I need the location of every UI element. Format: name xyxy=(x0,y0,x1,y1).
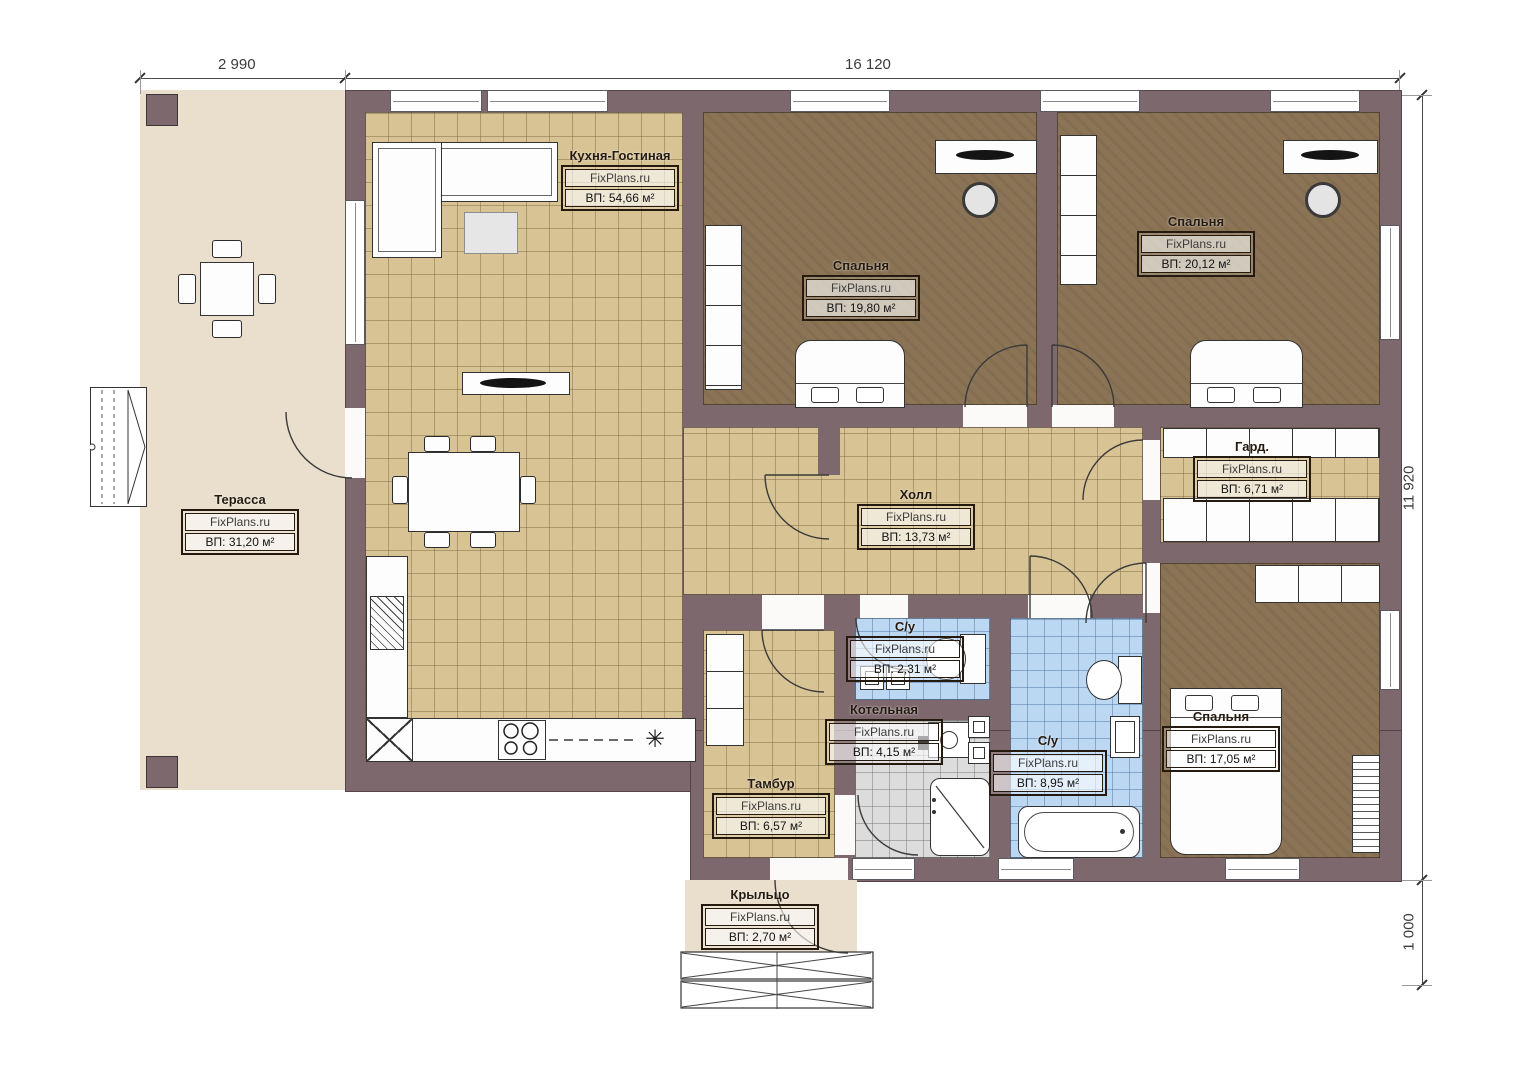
room-label-vestibule: Тамбур FixPlans.ru ВП: 6,57 м² xyxy=(712,776,830,839)
terrace-post-bottom xyxy=(146,756,178,788)
dim-ext xyxy=(1402,880,1432,881)
bed-bedroom1 xyxy=(795,340,905,408)
room-area: ВП: 2,31 м² xyxy=(850,660,960,678)
window-bedroom2-right xyxy=(1380,225,1400,340)
room-title: Тамбур xyxy=(712,776,830,791)
window-bedroom3-right xyxy=(1380,610,1400,690)
window-boiler-bottom xyxy=(852,858,915,880)
dim-line-right xyxy=(1422,95,1423,985)
stove xyxy=(498,720,546,760)
room-title: Крыльцо xyxy=(701,887,819,902)
room-area: ВП: 19,80 м² xyxy=(806,299,916,317)
dim-right-main-value: 11 920 xyxy=(1401,466,1418,511)
room-title: Котельная xyxy=(825,702,943,717)
room-title: Холл xyxy=(857,487,975,502)
room-area: ВП: 20,12 м² xyxy=(1141,255,1251,273)
window-living-top-1 xyxy=(390,90,482,112)
monitor-icon xyxy=(956,150,1014,160)
room-title: Спальня xyxy=(802,258,920,273)
office-chair-bedroom2 xyxy=(1305,182,1341,218)
room-title: Спальня xyxy=(1137,214,1255,229)
terrace-floor xyxy=(140,90,345,790)
shower-tray xyxy=(930,778,990,856)
terrace-post-top xyxy=(146,94,178,126)
room-title: Спальня xyxy=(1162,709,1280,724)
dim-line-top xyxy=(140,78,1400,79)
wardrobe-shelves-bottom xyxy=(1163,498,1380,542)
dining-table xyxy=(408,452,520,532)
room-area: ВП: 13,73 м² xyxy=(861,528,971,546)
room-label-terrace: Терасса FixPlans.ru ВП: 31,20 м² xyxy=(181,492,299,555)
room-label-wardrobe: Гард. FixPlans.ru ВП: 6,71 м² xyxy=(1193,439,1311,502)
dim-ext xyxy=(1402,985,1432,986)
closet-bedroom1 xyxy=(705,225,742,390)
kitchen-corner-unit xyxy=(367,719,413,761)
wardrobe-bedroom3 xyxy=(1352,755,1380,853)
closet-bedroom3 xyxy=(1255,565,1380,603)
dim-right-porch-value: 1 000 xyxy=(1401,913,1418,951)
room-area: ВП: 31,20 м² xyxy=(185,533,295,551)
dim-top-left-value: 2 990 xyxy=(218,56,256,73)
door-gap-bedroom2 xyxy=(1052,405,1114,427)
room-title: Кухня-Гостиная xyxy=(561,148,679,163)
window-living-left xyxy=(345,200,365,345)
dining-chair xyxy=(424,436,450,452)
watermark: FixPlans.ru xyxy=(705,908,815,926)
window-bedroom2-top-1 xyxy=(1040,90,1140,112)
room-label-bathroom-small: С/у FixPlans.ru ВП: 2,31 м² xyxy=(846,619,964,682)
porch-steps xyxy=(680,950,875,1012)
room-label-bathroom-big: С/у FixPlans.ru ВП: 8,95 м² xyxy=(989,733,1107,796)
room-area: ВП: 54,66 м² xyxy=(565,189,675,207)
room-area: ВП: 4,15 м² xyxy=(829,743,939,761)
door-gap-wardrobe xyxy=(1143,440,1160,500)
watermark: FixPlans.ru xyxy=(993,754,1103,772)
room-title: Терасса xyxy=(181,492,299,507)
door-gap-terrace xyxy=(345,408,365,478)
bed-bedroom2 xyxy=(1190,340,1303,408)
dim-top-main-value: 16 120 xyxy=(845,56,891,73)
watermark: FixPlans.ru xyxy=(806,279,916,297)
watermark: FixPlans.ru xyxy=(185,513,295,531)
watermark: FixPlans.ru xyxy=(1141,235,1251,253)
watermark: FixPlans.ru xyxy=(850,640,960,658)
sink-big xyxy=(1110,716,1140,758)
window-bathroom-big-bottom xyxy=(998,858,1074,880)
hall-wall-stub xyxy=(818,427,840,475)
room-label-bedroom2: Спальня FixPlans.ru ВП: 20,12 м² xyxy=(1137,214,1255,277)
watermark: FixPlans.ru xyxy=(716,797,826,815)
room-area: ВП: 8,95 м² xyxy=(993,774,1103,792)
room-label-porch: Крыльцо FixPlans.ru ВП: 2,70 м² xyxy=(701,887,819,950)
dining-chair xyxy=(520,476,536,504)
terrace-chair xyxy=(178,274,196,304)
monitor-icon xyxy=(1301,150,1359,160)
watermark: FixPlans.ru xyxy=(565,169,675,187)
room-title: С/у xyxy=(846,619,964,634)
dim-ext xyxy=(345,70,346,90)
watermark: FixPlans.ru xyxy=(829,723,939,741)
room-label-bedroom1: Спальня FixPlans.ru ВП: 19,80 м² xyxy=(802,258,920,321)
dining-chair xyxy=(392,476,408,504)
dim-ext xyxy=(140,70,141,94)
door-gap-bathroom-small xyxy=(860,595,908,618)
terrace-chair xyxy=(212,320,242,338)
dim-ext xyxy=(1399,70,1400,90)
room-label-bedroom3: Спальня FixPlans.ru ВП: 17,05 м² xyxy=(1162,709,1280,772)
door-gap-vestibule xyxy=(762,595,824,630)
coffee-table xyxy=(464,212,518,254)
boiler-unit-1 xyxy=(968,716,990,738)
fridge xyxy=(370,596,404,650)
dining-chair xyxy=(424,532,450,548)
door-gap-bathroom-big xyxy=(1028,595,1090,618)
door-gap-bedroom1 xyxy=(963,405,1027,427)
room-area: ВП: 6,57 м² xyxy=(716,817,826,835)
sofa-vertical xyxy=(372,142,442,258)
fridge-symbol-icon: ✳ xyxy=(645,728,665,752)
door-gap-boiler xyxy=(835,795,855,855)
room-label-kitchen-living: Кухня-Гостиная FixPlans.ru ВП: 54,66 м² xyxy=(561,148,679,211)
terrace-table xyxy=(200,262,254,316)
room-title: С/у xyxy=(989,733,1107,748)
tv-icon xyxy=(480,378,546,388)
watermark: FixPlans.ru xyxy=(861,508,971,526)
room-area: ВП: 17,05 м² xyxy=(1166,750,1276,768)
room-area: ВП: 2,70 м² xyxy=(705,928,815,946)
window-bedroom1-top xyxy=(790,90,890,112)
bathtub-drain xyxy=(1120,829,1125,834)
dining-chair xyxy=(470,436,496,452)
terrace-chair xyxy=(212,240,242,258)
room-label-hall: Холл FixPlans.ru ВП: 13,73 м² xyxy=(857,487,975,550)
watermark: FixPlans.ru xyxy=(1197,460,1307,478)
closet-vestibule xyxy=(706,634,744,746)
dining-chair xyxy=(470,532,496,548)
boiler-unit-2 xyxy=(968,742,990,764)
closet-bedroom2 xyxy=(1060,135,1097,285)
terrace-chair xyxy=(258,274,276,304)
terrace-stairs-detail xyxy=(90,387,147,507)
door-gap-bedroom3 xyxy=(1143,563,1160,613)
dim-ext xyxy=(1402,95,1432,96)
window-bedroom3-bottom xyxy=(1225,858,1300,880)
door-gap-porch xyxy=(770,858,848,880)
room-area: ВП: 6,71 м² xyxy=(1197,480,1307,498)
toilet-bowl-big xyxy=(1086,660,1122,700)
watermark: FixPlans.ru xyxy=(1166,730,1276,748)
window-bedroom2-top-2 xyxy=(1270,90,1360,112)
floor-plan: ✳ xyxy=(0,0,1528,1080)
window-living-top-2 xyxy=(487,90,608,112)
office-chair-bedroom1 xyxy=(962,182,998,218)
room-label-boiler: Котельная FixPlans.ru ВП: 4,15 м² xyxy=(825,702,943,765)
room-title: Гард. xyxy=(1193,439,1311,454)
